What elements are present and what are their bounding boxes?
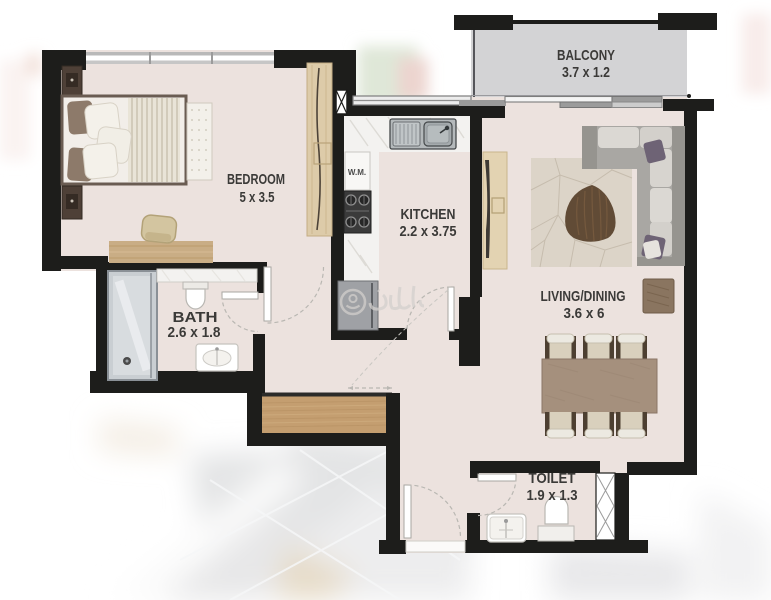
svg-text:W.M.: W.M.	[348, 168, 366, 177]
svg-text:BALCONY: BALCONY	[557, 47, 615, 64]
svg-text:TOILET: TOILET	[529, 470, 576, 487]
svg-text:BATH: BATH	[173, 309, 218, 326]
svg-text:3.6 x 6: 3.6 x 6	[564, 306, 605, 322]
svg-text:1.9 x 1.3: 1.9 x 1.3	[527, 488, 578, 504]
svg-text:5 x 3.5: 5 x 3.5	[240, 190, 275, 206]
svg-text:2.6 x 1.8: 2.6 x 1.8	[168, 325, 221, 341]
svg-text:BEDROOM: BEDROOM	[227, 171, 285, 188]
svg-text:3.7 x 1.2: 3.7 x 1.2	[562, 65, 610, 81]
svg-text:LIVING/DINING: LIVING/DINING	[541, 288, 626, 305]
svg-text:2.2 x 3.75: 2.2 x 3.75	[400, 224, 457, 240]
svg-text:KITCHEN: KITCHEN	[401, 206, 456, 223]
